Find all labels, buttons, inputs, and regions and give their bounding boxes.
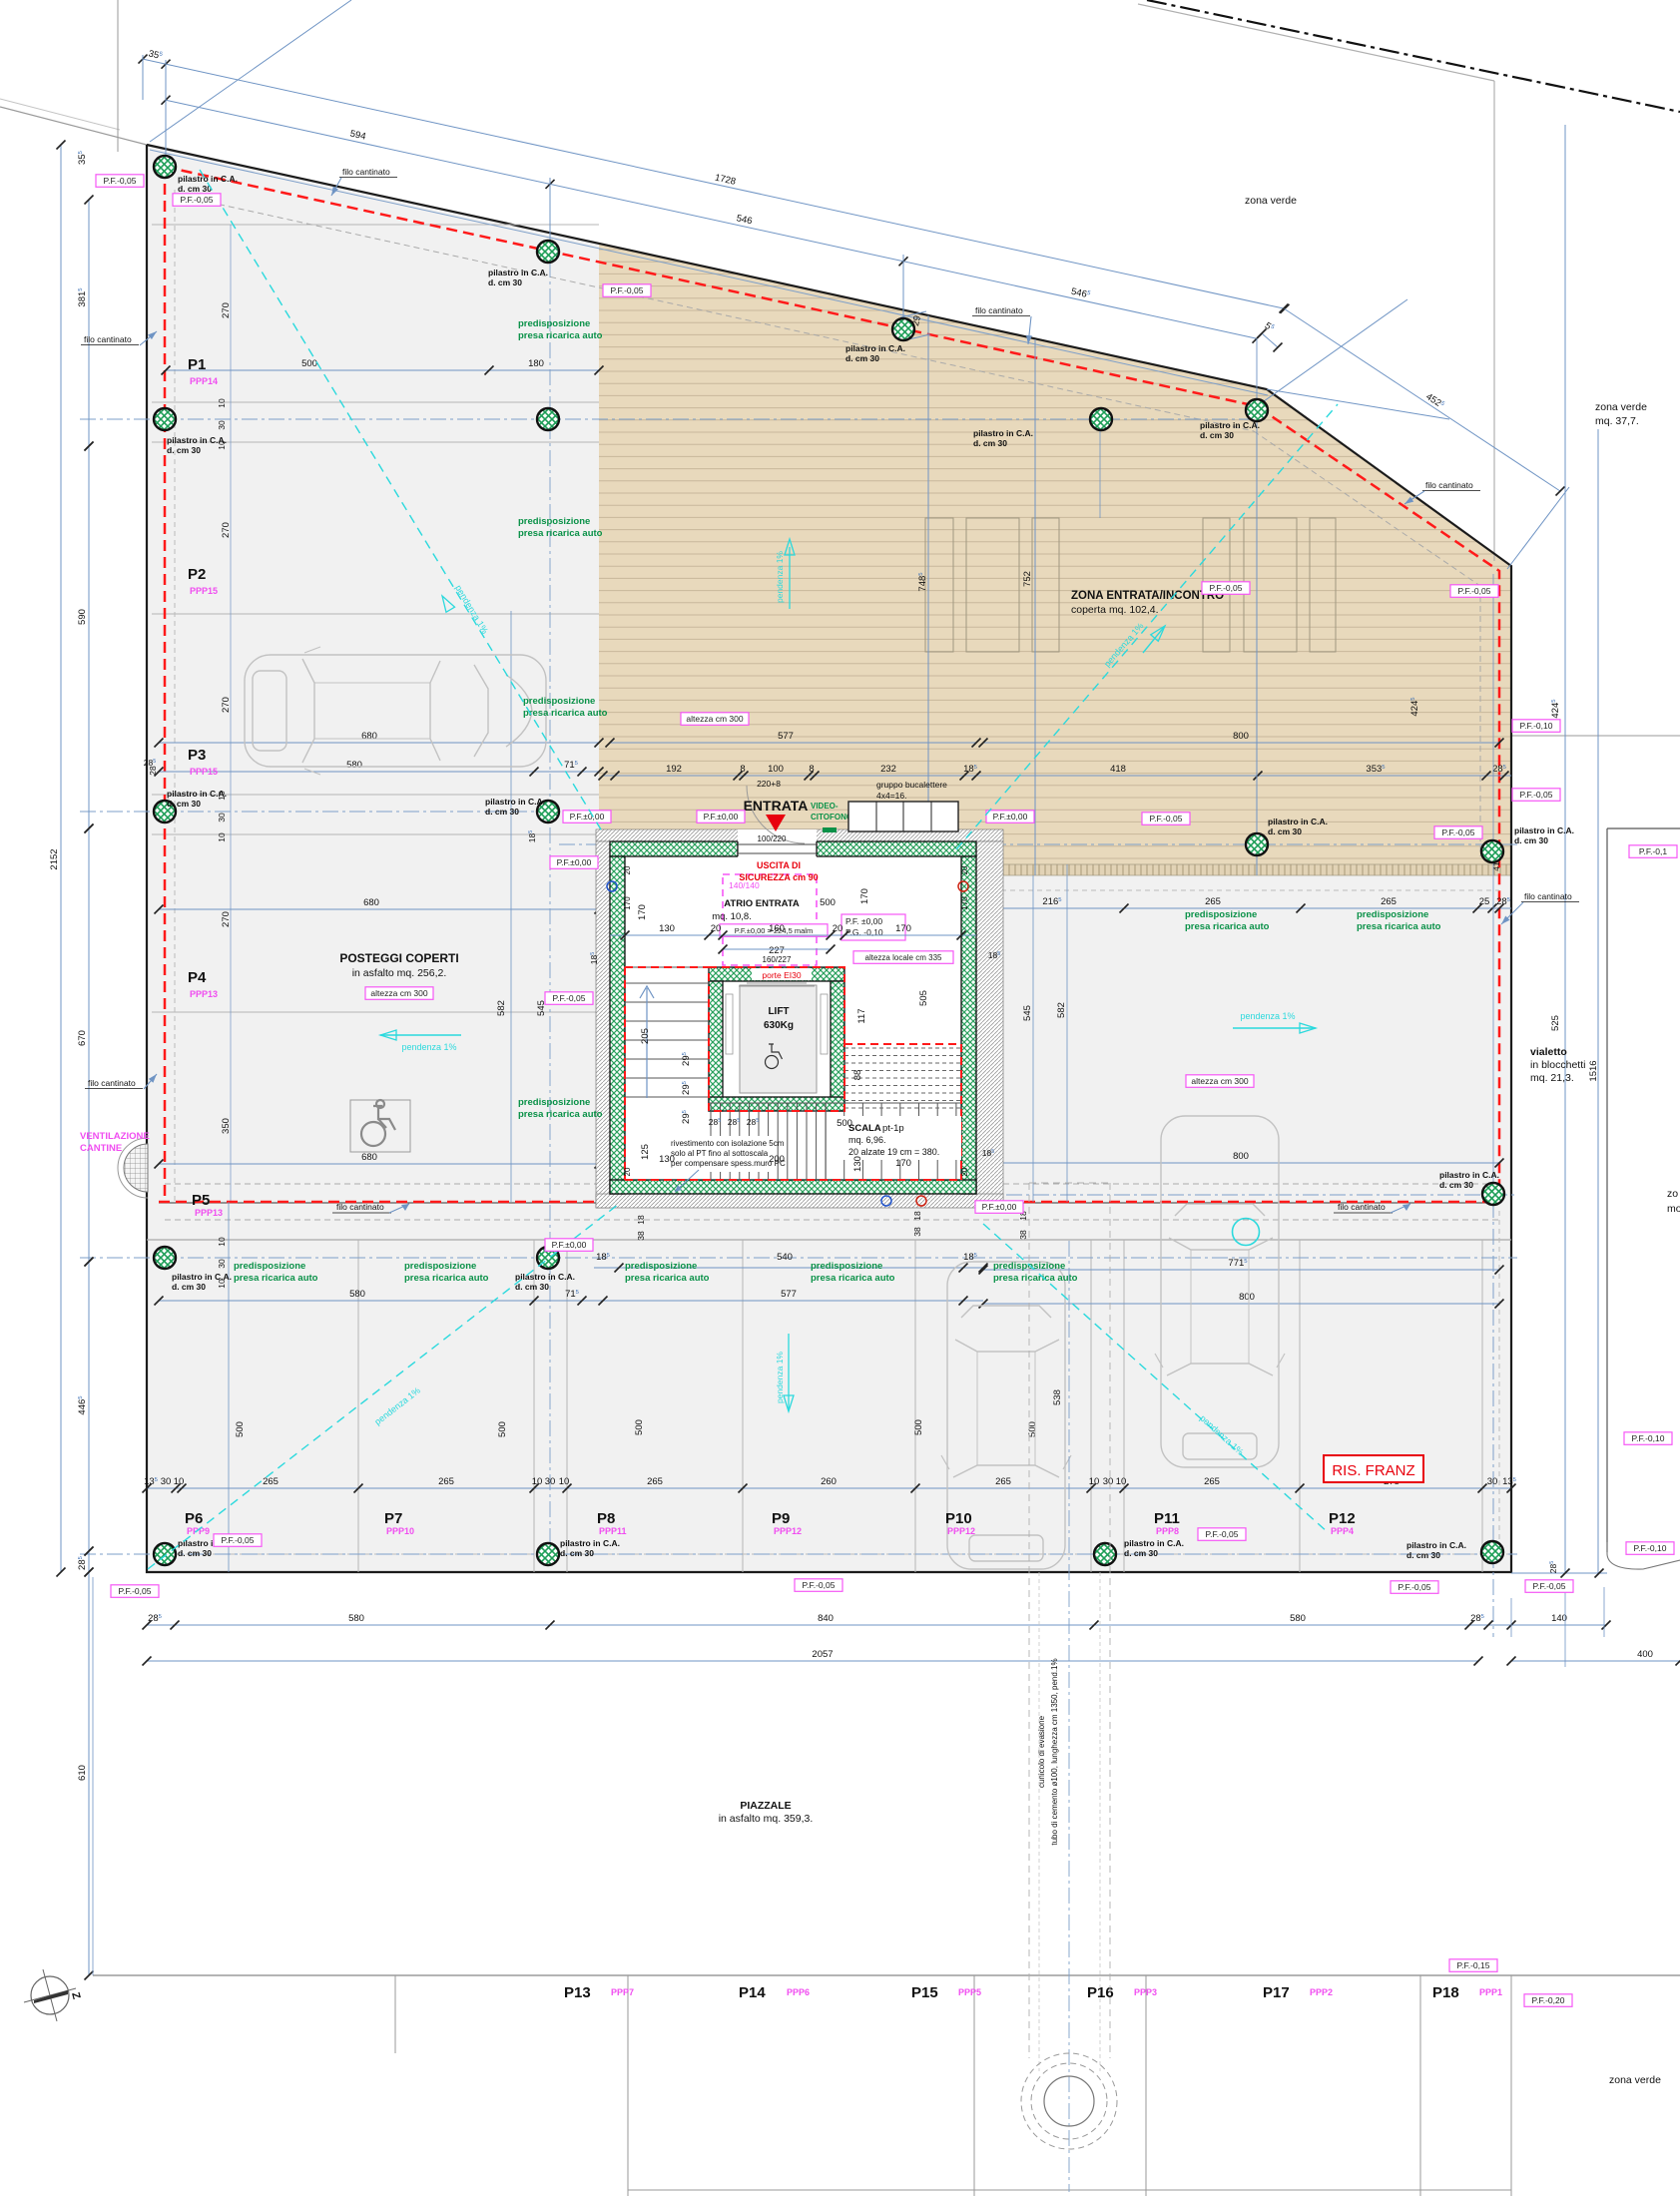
svg-text:20: 20 — [833, 923, 843, 934]
svg-text:P13: P13 — [564, 1984, 591, 2001]
svg-text:10: 10 — [217, 1237, 227, 1247]
svg-text:PPP6: PPP6 — [787, 1987, 810, 1997]
svg-text:in blocchetti: in blocchetti — [1530, 1059, 1585, 1071]
svg-text:d. cm 30: d. cm 30 — [560, 1548, 594, 1558]
svg-text:140: 140 — [1551, 1613, 1567, 1624]
svg-text:ENTRATA: ENTRATA — [744, 798, 809, 814]
svg-text:170: 170 — [859, 888, 870, 904]
svg-text:500: 500 — [634, 1419, 645, 1435]
svg-text:predisposizione: predisposizione — [523, 696, 595, 707]
svg-text:mo: mo — [1667, 1203, 1680, 1215]
svg-text:presa ricarica auto: presa ricarica auto — [993, 1273, 1078, 1284]
svg-text:P.F.-0,05: P.F.-0,05 — [119, 1586, 152, 1596]
svg-text:2152: 2152 — [49, 848, 60, 869]
svg-text:500: 500 — [301, 358, 317, 369]
svg-text:170: 170 — [637, 904, 648, 920]
svg-text:pilastro in C.A.: pilastro in C.A. — [1268, 817, 1328, 826]
svg-text:PPP13: PPP13 — [195, 1208, 223, 1218]
svg-text:10: 10 — [217, 398, 227, 408]
svg-text:265: 265 — [263, 1476, 279, 1487]
svg-text:P.F.-0,05: P.F.-0,05 — [1399, 1582, 1431, 1592]
svg-text:P17: P17 — [1263, 1984, 1290, 2001]
svg-text:predisposizione: predisposizione — [1357, 909, 1428, 920]
svg-text:38: 38 — [636, 1231, 646, 1241]
svg-text:577: 577 — [778, 731, 794, 742]
svg-text:P.F.±0,00: P.F.±0,00 — [552, 1240, 587, 1250]
svg-text:presa ricarica auto: presa ricarica auto — [518, 330, 603, 341]
svg-text:P.F.±0,00: P.F.±0,00 — [570, 812, 605, 822]
svg-text:P8: P8 — [597, 1510, 615, 1527]
svg-text:20: 20 — [623, 865, 632, 874]
svg-text:pilastro in C.A.: pilastro in C.A. — [560, 1538, 620, 1548]
svg-text:500: 500 — [913, 1419, 924, 1435]
svg-text:PIAZZALE: PIAZZALE — [740, 1800, 791, 1812]
svg-text:zona verde: zona verde — [1609, 2074, 1661, 2086]
svg-text:232: 232 — [880, 764, 896, 775]
svg-text:d. cm 30: d. cm 30 — [1124, 1548, 1158, 1558]
svg-text:170: 170 — [895, 923, 911, 934]
svg-text:PPP12: PPP12 — [947, 1526, 975, 1536]
svg-text:170: 170 — [895, 1158, 911, 1169]
svg-text:d. cm 30: d. cm 30 — [1439, 1180, 1473, 1190]
svg-text:525: 525 — [1550, 1015, 1561, 1031]
svg-text:P1: P1 — [188, 356, 206, 373]
svg-text:in asfalto mq. 359,3.: in asfalto mq. 359,3. — [719, 1813, 814, 1825]
svg-text:d. cm 30: d. cm 30 — [167, 445, 201, 455]
svg-text:2057: 2057 — [812, 1649, 833, 1660]
svg-text:filo cantinato: filo cantinato — [1425, 480, 1473, 490]
svg-text:752: 752 — [1022, 571, 1033, 587]
svg-text:130: 130 — [659, 923, 675, 934]
svg-text:20: 20 — [623, 1167, 632, 1176]
svg-text:zona verde: zona verde — [1245, 195, 1297, 207]
svg-text:270: 270 — [221, 522, 232, 538]
svg-text:zo: zo — [1667, 1188, 1678, 1200]
svg-text:610: 610 — [77, 1765, 88, 1781]
svg-text:d. cm 30: d. cm 30 — [178, 1548, 212, 1558]
svg-text:d. cm 30: d. cm 30 — [973, 438, 1007, 448]
svg-text:117: 117 — [856, 1008, 867, 1023]
svg-text:d. cm 30: d. cm 30 — [1514, 835, 1548, 845]
svg-text:38: 38 — [912, 1227, 922, 1237]
svg-text:10: 10 — [217, 832, 227, 842]
svg-text:265: 265 — [1381, 896, 1397, 907]
svg-text:30: 30 — [161, 1476, 172, 1487]
svg-text:265: 265 — [1205, 896, 1221, 907]
svg-text:P.F.±0,00: P.F.±0,00 — [982, 1202, 1017, 1212]
svg-text:solo al PT fino al sottoscala: solo al PT fino al sottoscala — [671, 1149, 769, 1158]
svg-text:LIFT: LIFT — [768, 1006, 789, 1017]
svg-text:PPP10: PPP10 — [386, 1526, 414, 1536]
svg-text:270: 270 — [221, 302, 232, 318]
svg-text:20: 20 — [960, 865, 969, 874]
svg-text:590: 590 — [77, 609, 88, 625]
svg-text:mq. 21,3.: mq. 21,3. — [1530, 1072, 1574, 1084]
svg-text:P.F.-0,10: P.F.-0,10 — [1634, 1543, 1667, 1553]
svg-text:P15: P15 — [911, 1984, 938, 2001]
svg-text:577: 577 — [781, 1289, 797, 1300]
svg-text:500: 500 — [820, 897, 836, 908]
svg-text:CITOFONO: CITOFONO — [811, 813, 852, 822]
svg-text:PPP8: PPP8 — [1156, 1526, 1179, 1536]
svg-text:pendenza 1%: pendenza 1% — [775, 1352, 785, 1403]
svg-text:predisposizione: predisposizione — [234, 1261, 305, 1272]
svg-text:580: 580 — [349, 1289, 365, 1300]
svg-text:ZONA ENTRATA/INCONTRO: ZONA ENTRATA/INCONTRO — [1071, 590, 1224, 602]
svg-text:presa ricarica auto: presa ricarica auto — [518, 528, 603, 539]
svg-text:PPP2: PPP2 — [1310, 1987, 1333, 1997]
svg-text:38: 38 — [1018, 1230, 1028, 1240]
svg-text:170: 170 — [623, 896, 632, 910]
svg-text:P.F.-0,10: P.F.-0,10 — [1632, 1433, 1665, 1443]
svg-text:P.F.-0,05: P.F.-0,05 — [222, 1535, 255, 1545]
svg-text:predisposizione: predisposizione — [518, 1097, 590, 1108]
svg-text:pilastro in C.A.: pilastro in C.A. — [167, 789, 227, 799]
svg-text:filo cantinato: filo cantinato — [336, 1202, 384, 1212]
svg-text:predisposizione: predisposizione — [811, 1261, 882, 1272]
svg-text:8: 8 — [740, 764, 745, 775]
svg-text:P.F.-0,10: P.F.-0,10 — [1520, 721, 1553, 731]
svg-text:presa ricarica auto: presa ricarica auto — [625, 1273, 710, 1284]
svg-text:PPP5: PPP5 — [958, 1987, 981, 1997]
svg-text:SCALA: SCALA — [848, 1123, 881, 1134]
svg-text:P.F.-0,05: P.F.-0,05 — [1206, 1529, 1239, 1539]
svg-text:pendenza 1%: pendenza 1% — [401, 1042, 456, 1052]
svg-text:pilastro in C.A.: pilastro in C.A. — [178, 174, 238, 184]
svg-text:presa ricarica auto: presa ricarica auto — [234, 1273, 318, 1284]
svg-text:d. cm 30: d. cm 30 — [485, 807, 519, 817]
svg-text:265: 265 — [995, 1476, 1011, 1487]
svg-text:P.F.-0,05: P.F.-0,05 — [803, 1580, 836, 1590]
svg-text:4x4=16.: 4x4=16. — [876, 791, 907, 801]
svg-text:400: 400 — [1637, 1649, 1653, 1660]
svg-text:d. cm 30: d. cm 30 — [488, 277, 522, 287]
svg-text:rivestimento con isolazione 5c: rivestimento con isolazione 5cm — [671, 1139, 785, 1148]
svg-text:P.F.-0,05: P.F.-0,05 — [1442, 827, 1475, 837]
svg-text:mq. 6,96.: mq. 6,96. — [848, 1135, 886, 1145]
svg-text:ATRIO ENTRATA: ATRIO ENTRATA — [724, 898, 800, 909]
svg-text:680: 680 — [361, 731, 377, 742]
svg-text:pilastro in C.A.: pilastro in C.A. — [485, 797, 545, 807]
svg-text:pendenza 1%: pendenza 1% — [1240, 1011, 1295, 1021]
svg-text:filo cantinato: filo cantinato — [1338, 1202, 1386, 1212]
svg-text:altezza cm 300: altezza cm 300 — [686, 714, 743, 724]
svg-text:540: 540 — [777, 1252, 793, 1263]
svg-text:P6: P6 — [185, 1510, 203, 1527]
svg-text:pilastro in C.A.: pilastro in C.A. — [973, 428, 1033, 438]
svg-text:200: 200 — [769, 1154, 785, 1165]
svg-text:d. cm 30: d. cm 30 — [1406, 1550, 1440, 1560]
svg-text:USCITA DI: USCITA DI — [757, 860, 801, 870]
svg-text:tubo di cemento ø100, lunghezz: tubo di cemento ø100, lunghezza cm 1350,… — [1050, 1658, 1059, 1845]
svg-text:265: 265 — [647, 1476, 663, 1487]
svg-text:670: 670 — [77, 1030, 88, 1046]
svg-text:180: 180 — [528, 358, 544, 369]
svg-text:P.F.-0,05: P.F.-0,05 — [1458, 586, 1491, 596]
svg-text:PPP15: PPP15 — [190, 767, 218, 777]
svg-text:PPP7: PPP7 — [611, 1987, 634, 1997]
svg-text:presa ricarica auto: presa ricarica auto — [404, 1273, 489, 1284]
svg-text:538: 538 — [1052, 1389, 1063, 1405]
svg-text:170: 170 — [960, 896, 969, 910]
svg-text:RIS. FRANZ: RIS. FRANZ — [1332, 1462, 1414, 1479]
svg-text:presa ricarica auto: presa ricarica auto — [523, 708, 608, 719]
svg-text:500: 500 — [235, 1421, 246, 1437]
svg-text:SICUREZZA cm 90: SICUREZZA cm 90 — [739, 872, 818, 882]
svg-text:418: 418 — [1110, 764, 1126, 775]
svg-text:predisposizione: predisposizione — [404, 1261, 476, 1272]
svg-text:predisposizione: predisposizione — [1185, 909, 1257, 920]
svg-text:presa ricarica auto: presa ricarica auto — [1185, 921, 1270, 932]
svg-text:130: 130 — [852, 1156, 863, 1172]
svg-text:160/227: 160/227 — [763, 955, 792, 964]
svg-text:PPP13: PPP13 — [190, 989, 218, 999]
svg-text:30: 30 — [217, 813, 227, 823]
svg-text:125: 125 — [640, 1144, 651, 1160]
svg-text:10: 10 — [1089, 1476, 1100, 1487]
svg-text:PPP12: PPP12 — [774, 1526, 802, 1536]
svg-text:d. cm 30: d. cm 30 — [1268, 826, 1302, 836]
svg-text:pilastro in C.A.: pilastro in C.A. — [1439, 1170, 1499, 1180]
svg-text:580: 580 — [1290, 1613, 1306, 1624]
svg-text:350: 350 — [221, 1118, 232, 1134]
svg-text:P10: P10 — [945, 1510, 972, 1527]
svg-text:cunicolo di evasione: cunicolo di evasione — [1037, 1715, 1046, 1788]
svg-text:30: 30 — [1103, 1476, 1114, 1487]
svg-text:P.F.-0,05: P.F.-0,05 — [181, 195, 214, 205]
svg-text:220+8: 220+8 — [757, 779, 781, 789]
svg-text:500: 500 — [497, 1421, 508, 1437]
svg-text:filo cantinato: filo cantinato — [84, 334, 132, 344]
svg-text:filo cantinato: filo cantinato — [975, 305, 1023, 315]
svg-text:pendenza 1%: pendenza 1% — [775, 551, 785, 603]
svg-text:porte EI30: porte EI30 — [762, 970, 801, 980]
svg-text:30: 30 — [217, 420, 227, 430]
svg-text:P.F.±0,00: P.F.±0,00 — [557, 857, 592, 867]
svg-text:P.F.-0,05: P.F.-0,05 — [1520, 790, 1553, 800]
svg-text:10: 10 — [532, 1476, 543, 1487]
svg-text:PPP14: PPP14 — [190, 376, 218, 386]
svg-text:VIDEO-: VIDEO- — [811, 802, 839, 811]
svg-text:30: 30 — [217, 1259, 227, 1269]
svg-text:P4: P4 — [188, 969, 207, 986]
svg-text:pt-1p: pt-1p — [882, 1123, 904, 1134]
svg-text:presa ricarica auto: presa ricarica auto — [811, 1273, 895, 1284]
svg-text:PPP11: PPP11 — [599, 1526, 627, 1536]
svg-text:545: 545 — [1022, 1005, 1033, 1021]
svg-text:P.F.-0,1: P.F.-0,1 — [1639, 846, 1667, 856]
svg-text:in asfalto mq. 256,2.: in asfalto mq. 256,2. — [352, 967, 447, 979]
svg-text:20: 20 — [960, 1167, 969, 1176]
svg-text:predisposizione: predisposizione — [518, 516, 590, 527]
svg-text:P9: P9 — [772, 1510, 790, 1527]
svg-text:pilastro in C.A.: pilastro in C.A. — [845, 343, 905, 353]
svg-text:presa ricarica auto: presa ricarica auto — [518, 1109, 603, 1120]
svg-text:P11: P11 — [1154, 1510, 1180, 1527]
svg-text:pilastro in C.A.: pilastro in C.A. — [1124, 1538, 1184, 1548]
svg-text:d. cm 30: d. cm 30 — [515, 1282, 549, 1292]
svg-text:altezza cm 300: altezza cm 300 — [1191, 1076, 1248, 1086]
svg-text:800: 800 — [1233, 731, 1249, 742]
svg-text:pilastro in C.A.: pilastro in C.A. — [488, 268, 548, 277]
svg-text:P.F.-0,05: P.F.-0,05 — [1150, 814, 1183, 823]
svg-text:P14: P14 — [739, 1984, 766, 2001]
svg-text:predisposizione: predisposizione — [625, 1261, 697, 1272]
svg-text:P.F.-0,20: P.F.-0,20 — [1532, 1995, 1565, 2005]
svg-text:P.F.-0,15: P.F.-0,15 — [1457, 1960, 1490, 1970]
svg-text:P18: P18 — [1432, 1984, 1459, 2001]
svg-text:mq. 37,7.: mq. 37,7. — [1595, 415, 1639, 427]
svg-text:PPP9: PPP9 — [187, 1526, 210, 1536]
svg-text:25: 25 — [1479, 896, 1490, 907]
svg-text:d. cm 30: d. cm 30 — [178, 184, 212, 194]
svg-text:gruppo bucalettere: gruppo bucalettere — [876, 780, 947, 790]
svg-text:100/220: 100/220 — [758, 834, 787, 843]
svg-text:30: 30 — [545, 1476, 556, 1487]
svg-text:P.F.-0,05: P.F.-0,05 — [1210, 583, 1243, 593]
svg-text:30: 30 — [1487, 1476, 1498, 1487]
svg-text:P5: P5 — [192, 1192, 210, 1209]
svg-text:260: 260 — [821, 1476, 837, 1487]
svg-text:filo cantinato: filo cantinato — [1524, 891, 1572, 901]
svg-text:predisposizione: predisposizione — [518, 318, 590, 329]
svg-text:presa ricarica auto: presa ricarica auto — [1357, 921, 1441, 932]
svg-text:582: 582 — [496, 1000, 507, 1016]
svg-text:100: 100 — [768, 764, 784, 775]
svg-text:205: 205 — [640, 1028, 651, 1044]
svg-text:580: 580 — [348, 1613, 364, 1624]
svg-text:POSTEGGI COPERTI: POSTEGGI COPERTI — [339, 951, 458, 965]
svg-text:505: 505 — [918, 990, 929, 1006]
svg-text:582: 582 — [1056, 1002, 1067, 1018]
svg-text:P.F.-0,05: P.F.-0,05 — [553, 993, 586, 1003]
svg-text:mq. 10,8.: mq. 10,8. — [712, 911, 752, 922]
svg-text:P.F.-0,05: P.F.-0,05 — [104, 176, 137, 186]
svg-text:altezza locale cm 335: altezza locale cm 335 — [865, 953, 942, 962]
svg-text:d. cm 30: d. cm 30 — [172, 1282, 206, 1292]
svg-text:500: 500 — [837, 1118, 852, 1129]
svg-text:P3: P3 — [188, 747, 206, 764]
svg-text:pilastro in C.A.: pilastro in C.A. — [167, 435, 227, 445]
svg-text:18: 18 — [636, 1215, 646, 1225]
svg-text:88: 88 — [852, 1070, 863, 1081]
svg-text:P2: P2 — [188, 566, 206, 583]
svg-text:zona verde: zona verde — [1595, 401, 1647, 413]
svg-text:coperta mq. 102,4.: coperta mq. 102,4. — [1071, 604, 1159, 616]
svg-text:altezza cm 300: altezza cm 300 — [370, 988, 427, 998]
svg-text:10: 10 — [559, 1476, 570, 1487]
svg-text:P7: P7 — [384, 1510, 402, 1527]
svg-text:20 alzate 19 cm = 380.: 20 alzate 19 cm = 380. — [848, 1147, 939, 1157]
svg-text:d. cm 30: d. cm 30 — [167, 799, 201, 809]
svg-text:CANTINE: CANTINE — [80, 1143, 122, 1154]
svg-text:680: 680 — [363, 897, 379, 908]
svg-text:filo cantinato: filo cantinato — [88, 1078, 136, 1088]
svg-text:192: 192 — [666, 764, 682, 775]
svg-text:800: 800 — [1239, 1292, 1255, 1303]
svg-text:10: 10 — [1116, 1476, 1127, 1487]
svg-text:270: 270 — [221, 697, 232, 713]
svg-text:PPP4: PPP4 — [1331, 1526, 1354, 1536]
svg-text:680: 680 — [361, 1152, 377, 1163]
svg-text:pilastro in C.A.: pilastro in C.A. — [515, 1272, 575, 1282]
svg-text:pilastro in C.A.: pilastro in C.A. — [1406, 1540, 1466, 1550]
svg-text:10: 10 — [174, 1476, 185, 1487]
svg-text:18: 18 — [912, 1211, 922, 1221]
svg-text:160: 160 — [769, 923, 785, 934]
svg-text:P.F.-0,05: P.F.-0,05 — [1533, 1581, 1566, 1591]
svg-text:265: 265 — [438, 1476, 454, 1487]
svg-text:270: 270 — [221, 911, 232, 927]
svg-text:P.F.±0,00: P.F.±0,00 — [704, 812, 739, 822]
svg-text:580: 580 — [346, 760, 362, 771]
svg-text:pilastro in C.A.: pilastro in C.A. — [1514, 825, 1574, 835]
svg-text:P.F.±0,00: P.F.±0,00 — [993, 812, 1028, 822]
svg-text:800: 800 — [1233, 1151, 1249, 1162]
svg-text:P.F. ±0,00: P.F. ±0,00 — [845, 916, 882, 926]
svg-text:pilastro in C.A.: pilastro in C.A. — [1200, 420, 1260, 430]
svg-text:840: 840 — [818, 1613, 834, 1624]
svg-text:20: 20 — [711, 923, 722, 934]
svg-text:filo cantinato: filo cantinato — [342, 167, 390, 177]
svg-text:1516: 1516 — [1588, 1060, 1599, 1081]
svg-text:265: 265 — [1204, 1476, 1220, 1487]
svg-text:PPP3: PPP3 — [1134, 1987, 1157, 1997]
svg-text:130: 130 — [659, 1154, 675, 1165]
svg-text:d. cm 30: d. cm 30 — [845, 353, 879, 363]
svg-text:vialetto: vialetto — [1530, 1046, 1567, 1058]
svg-text:P.F.-0,05: P.F.-0,05 — [611, 285, 644, 295]
svg-text:630Kg: 630Kg — [764, 1020, 794, 1031]
svg-text:PPP15: PPP15 — [190, 586, 218, 596]
svg-text:P12: P12 — [1329, 1510, 1356, 1527]
svg-text:d. cm 30: d. cm 30 — [1200, 430, 1234, 440]
svg-text:VENTILAZIONE: VENTILAZIONE — [80, 1131, 150, 1142]
svg-text:pilastro in C.A.: pilastro in C.A. — [172, 1272, 232, 1282]
svg-text:8: 8 — [809, 764, 814, 775]
svg-text:PPP1: PPP1 — [1479, 1987, 1502, 1997]
